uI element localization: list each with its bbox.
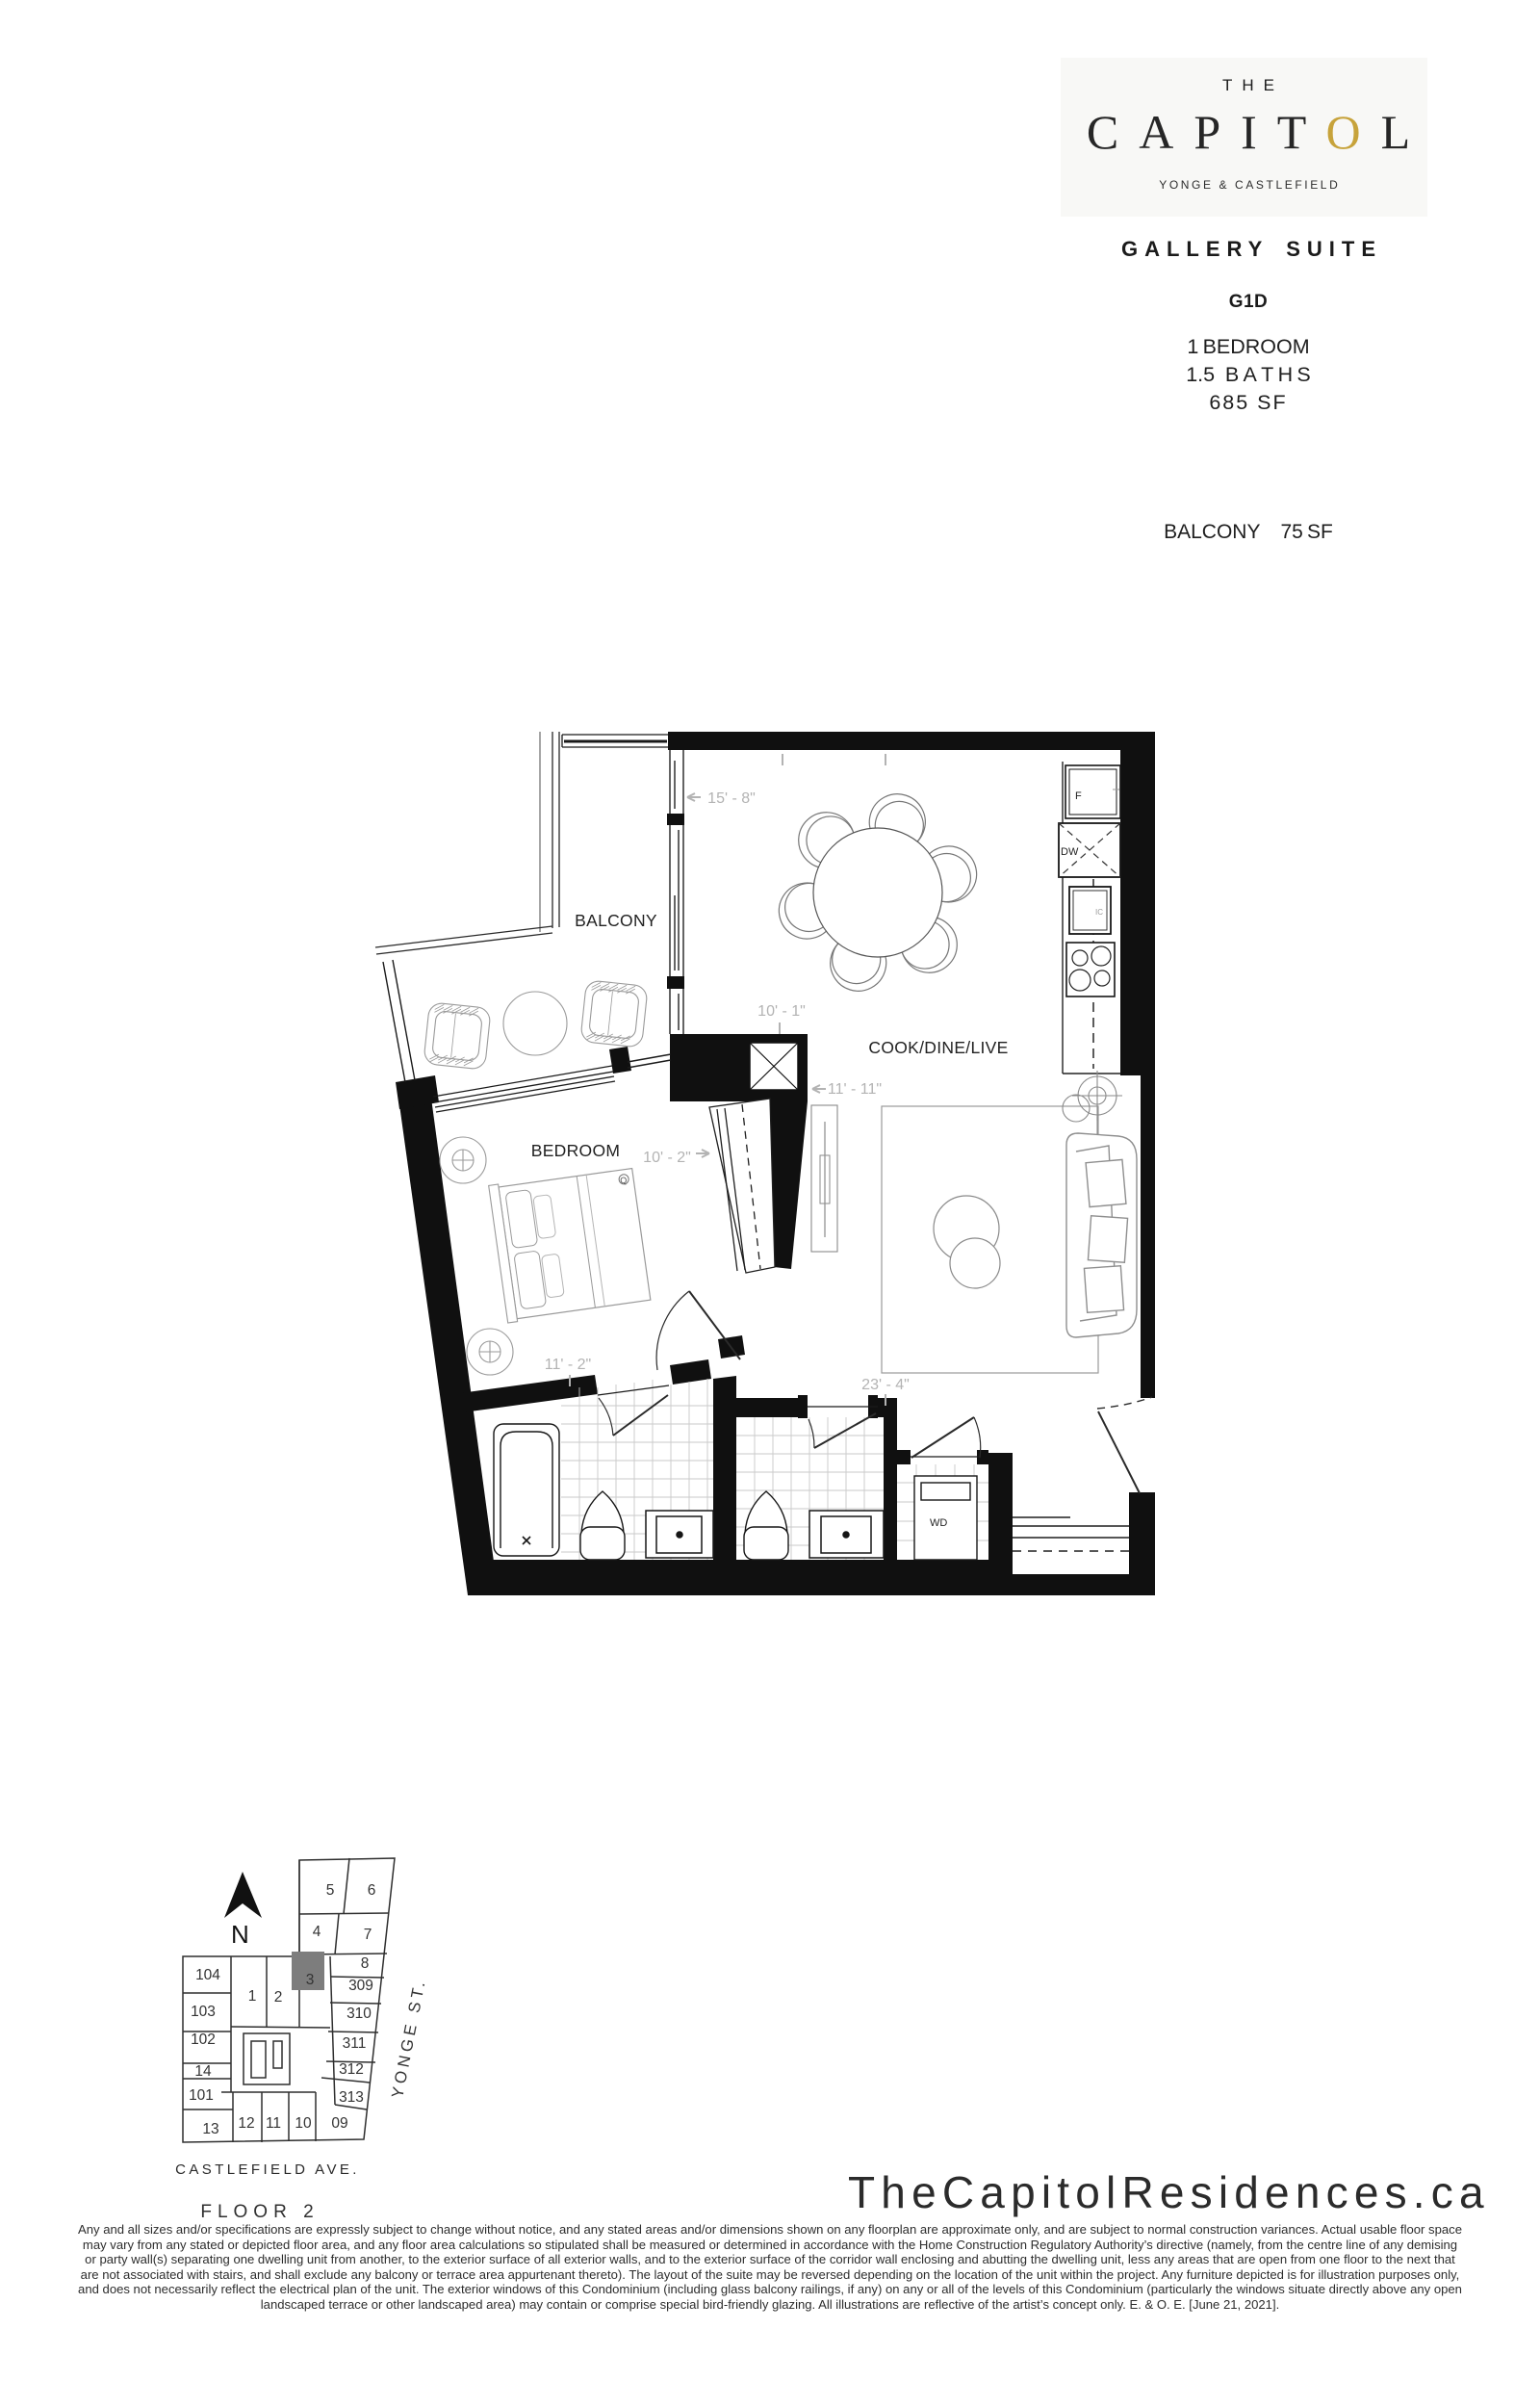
svg-text:104: 104 <box>195 1967 220 1983</box>
svg-text:7: 7 <box>364 1927 372 1943</box>
svg-text:310: 310 <box>346 2006 372 2022</box>
svg-text:4: 4 <box>313 1924 321 1940</box>
svg-text:WD: WD <box>930 1517 947 1529</box>
svg-text:N: N <box>231 1920 249 1949</box>
svg-text:14: 14 <box>194 2063 212 2080</box>
svg-text:BALCONY: BALCONY <box>575 911 657 930</box>
svg-text:12: 12 <box>238 2115 254 2132</box>
svg-text:BEDROOM: BEDROOM <box>531 1141 621 1160</box>
svg-text:2: 2 <box>274 1989 283 2006</box>
svg-text:103: 103 <box>191 2004 216 2020</box>
svg-text:10: 10 <box>295 2115 312 2132</box>
svg-text:1: 1 <box>248 1988 257 2005</box>
svg-text:102: 102 <box>191 2032 216 2048</box>
svg-text:3: 3 <box>306 1972 315 1988</box>
svg-text:15' - 8": 15' - 8" <box>707 790 756 807</box>
svg-text:101: 101 <box>189 2087 214 2104</box>
svg-text:11: 11 <box>266 2115 281 2132</box>
svg-text:F: F <box>1075 790 1082 802</box>
svg-text:Q: Q <box>620 1175 628 1185</box>
svg-text:313: 313 <box>339 2089 364 2106</box>
svg-text:13: 13 <box>202 2121 218 2137</box>
svg-text:YONGE ST.: YONGE ST. <box>388 1977 429 2100</box>
svg-text:5: 5 <box>326 1882 335 1899</box>
svg-text:10' - 2": 10' - 2" <box>643 1150 691 1166</box>
svg-text:311: 311 <box>343 2035 367 2052</box>
svg-text:10' - 1": 10' - 1" <box>757 1003 806 1020</box>
svg-text:11' - 11": 11' - 11" <box>828 1081 882 1098</box>
svg-text:6: 6 <box>368 1882 376 1899</box>
svg-text:COOK/DINE/LIVE: COOK/DINE/LIVE <box>868 1038 1008 1057</box>
svg-text:8: 8 <box>361 1955 370 1972</box>
svg-text:11' - 2": 11' - 2" <box>545 1357 591 1373</box>
svg-text:09: 09 <box>331 2115 347 2132</box>
svg-text:309: 309 <box>348 1978 373 1994</box>
svg-text:DW: DW <box>1061 846 1079 858</box>
svg-text:23' - 4": 23' - 4" <box>861 1377 910 1393</box>
svg-text:312: 312 <box>339 2061 364 2078</box>
svg-text:IC: IC <box>1095 908 1103 917</box>
